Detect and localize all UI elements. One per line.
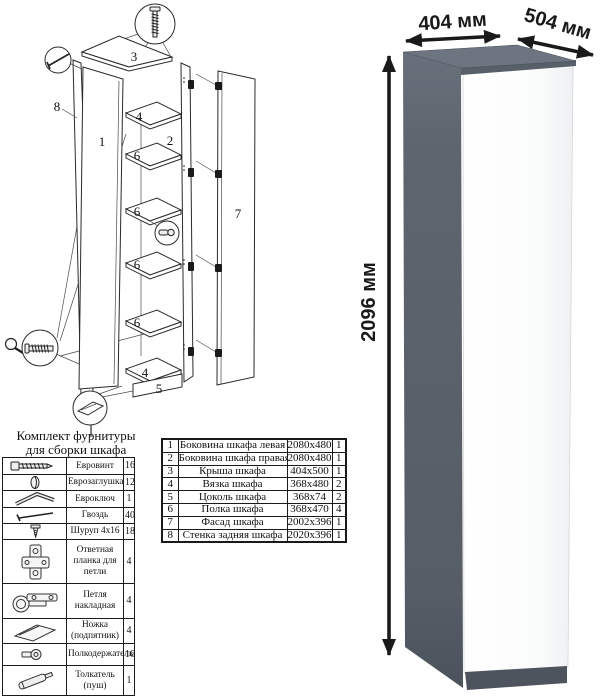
- part-label-5: 5: [156, 381, 163, 396]
- part-size: 368x74: [287, 491, 332, 504]
- product-render: 404 мм 504 мм 2096 мм: [360, 0, 601, 700]
- hardware-name: Еврозаглушка: [67, 475, 124, 491]
- screw-icon: [7, 524, 63, 539]
- hardware-qty: 4: [124, 619, 135, 644]
- part-qty: 1: [332, 452, 346, 465]
- wardrobe-door-face: [463, 65, 573, 673]
- hardware-row: Ответная планка для петли 4: [3, 540, 135, 584]
- part-qty: 1: [332, 529, 346, 542]
- hardware-row: Петля накладная 4: [3, 584, 135, 619]
- part-label-7: 7: [235, 206, 242, 221]
- part-name: Вязка шкафа: [178, 478, 287, 491]
- part-qty: 1: [332, 516, 346, 529]
- hardware-kit-title-line1: Комплект фурнитуры: [0, 429, 152, 443]
- part-num: 2: [162, 452, 178, 465]
- hardware-name: Евровинт: [67, 458, 124, 475]
- part-num: 8: [162, 529, 178, 542]
- hardware-name: Толкатель (пуш): [67, 666, 124, 696]
- hardware-kit-title: Комплект фурнитуры для сборки шкафа: [0, 429, 152, 457]
- part-label-8: 8: [54, 99, 61, 114]
- part-name: Крыша шкафа: [178, 465, 287, 478]
- hardware-qty: 40: [124, 508, 135, 524]
- hardware-qty: 1: [124, 491, 135, 508]
- hardware-row: Толкатель (пуш) 1: [3, 666, 135, 696]
- parts-row: 2Боковина шкафа правая2080x4801: [162, 452, 346, 465]
- part-name: Боковина шкафа правая: [178, 452, 287, 465]
- shelf-holder-callout: [150, 221, 179, 245]
- hardware-qty: 18: [124, 524, 135, 540]
- assembly-sheet: 3 8 1 4 2 6 6 6 6 4 5 7 Комплект фурниту…: [0, 0, 601, 700]
- hardware-row: Евровинт 16: [3, 458, 135, 475]
- hardware-name: Петля накладная: [67, 584, 124, 619]
- hardware-row: Еврозаглушка 12: [3, 475, 135, 491]
- hardware-name: Шуруп 4x16: [67, 524, 124, 540]
- part-num: 7: [162, 516, 178, 529]
- door-panel: [217, 71, 255, 385]
- shelf-holder-icon: [7, 645, 63, 664]
- part-size: 404x500: [287, 465, 332, 478]
- hardware-qty: 16: [124, 458, 135, 475]
- part-label-6: 6: [134, 148, 141, 163]
- hardware-name: Полкодержатель: [67, 644, 124, 666]
- hardware-name: Евроключ: [67, 491, 124, 508]
- part-qty: 1: [332, 465, 346, 478]
- foot-icon: [7, 620, 63, 643]
- confirmat-key-callout: [6, 330, 59, 366]
- hardware-kit-table: Евровинт 16 Еврозаглушка 12 Евроключ 1 Г…: [2, 457, 135, 696]
- top-tie-panel: [126, 102, 181, 129]
- part-name: Полка шкафа: [178, 503, 287, 516]
- nail-icon: [7, 508, 63, 523]
- part-label-4: 4: [142, 365, 149, 380]
- hardware-qty: 16: [124, 644, 135, 666]
- depth-dimension-label: 504 мм: [522, 4, 594, 44]
- euro-key-icon: [7, 491, 63, 507]
- part-size: 368x470: [287, 503, 332, 516]
- hardware-row: Полкодержатель 16: [3, 644, 135, 666]
- hinge-plate-icon: [7, 542, 63, 582]
- part-qty: 1: [332, 439, 346, 452]
- screw-callout: [135, 4, 175, 44]
- part-size: 2080x480: [287, 439, 332, 452]
- height-dimension-label: 2096 мм: [360, 262, 380, 342]
- wardrobe: [403, 45, 576, 690]
- part-name: Цоколь шкафа: [178, 491, 287, 504]
- parts-row: 7Фасад шкафа2002x3961: [162, 516, 346, 529]
- part-size: 2080x480: [287, 452, 332, 465]
- width-dimension-label: 404 мм: [418, 9, 488, 36]
- hardware-row: Гвоздь 40: [3, 508, 135, 524]
- hardware-qty: 1: [124, 666, 135, 696]
- parts-row: 3Крыша шкафа404x5001: [162, 465, 346, 478]
- hardware-row: Шуруп 4x16 18: [3, 524, 135, 540]
- parts-row: 4Вязка шкафа368x4802: [162, 478, 346, 491]
- part-label-3: 3: [131, 49, 138, 64]
- parts-row: 8Стенка задняя шкафа2020x3961: [162, 529, 346, 542]
- part-num: 4: [162, 478, 178, 491]
- push-opener-icon: [7, 667, 63, 694]
- part-qty: 4: [332, 503, 346, 516]
- part-size: 2002x396: [287, 516, 332, 529]
- hardware-kit-title-line2: для сборки шкафа: [0, 443, 152, 457]
- part-name: Боковина шкафа левая: [178, 439, 287, 452]
- hardware-name: Гвоздь: [67, 508, 124, 524]
- euro-cap-icon: [7, 475, 63, 490]
- parts-table: 1Боковина шкафа левая2080x4801 2Боковина…: [161, 438, 347, 543]
- parts-row: 5Цоколь шкафа368x742: [162, 491, 346, 504]
- right-side-panel: [181, 63, 193, 382]
- hardware-name: Ножка (подпятник): [67, 619, 124, 644]
- part-label-6: 6: [134, 257, 141, 272]
- part-qty: 2: [332, 478, 346, 491]
- part-num: 5: [162, 491, 178, 504]
- part-qty: 2: [332, 491, 346, 504]
- part-name: Фасад шкафа: [178, 516, 287, 529]
- part-label-1: 1: [99, 134, 106, 149]
- hardware-row: Ножка (подпятник) 4: [3, 619, 135, 644]
- part-label-2: 2: [167, 133, 174, 148]
- width-arrow: [406, 36, 500, 41]
- parts-row: 6Полка шкафа368x4704: [162, 503, 346, 516]
- part-size: 2020x396: [287, 529, 332, 542]
- part-num: 3: [162, 465, 178, 478]
- hardware-qty: 4: [124, 540, 135, 584]
- part-label-6: 6: [134, 315, 141, 330]
- part-name: Стенка задняя шкафа: [178, 529, 287, 542]
- hardware-name: Ответная планка для петли: [67, 540, 124, 584]
- hardware-qty: 4: [124, 584, 135, 619]
- shelf-holder-glyph-icon: [159, 229, 174, 235]
- hardware-qty: 12: [124, 475, 135, 491]
- part-num: 1: [162, 439, 178, 452]
- part-label-4: 4: [136, 109, 143, 124]
- assembly-diagram: 3 8 1 4 2 6 6 6 6 4 5 7: [0, 0, 360, 445]
- wardrobe-side-face: [403, 52, 463, 688]
- hardware-row: Евроключ 1: [3, 491, 135, 508]
- part-num: 6: [162, 503, 178, 516]
- parts-row: 1Боковина шкафа левая2080x4801: [162, 439, 346, 452]
- part-size: 368x480: [287, 478, 332, 491]
- part-label-6: 6: [134, 204, 141, 219]
- hinge-icon: [7, 586, 63, 617]
- euro-screw-icon: [7, 458, 63, 474]
